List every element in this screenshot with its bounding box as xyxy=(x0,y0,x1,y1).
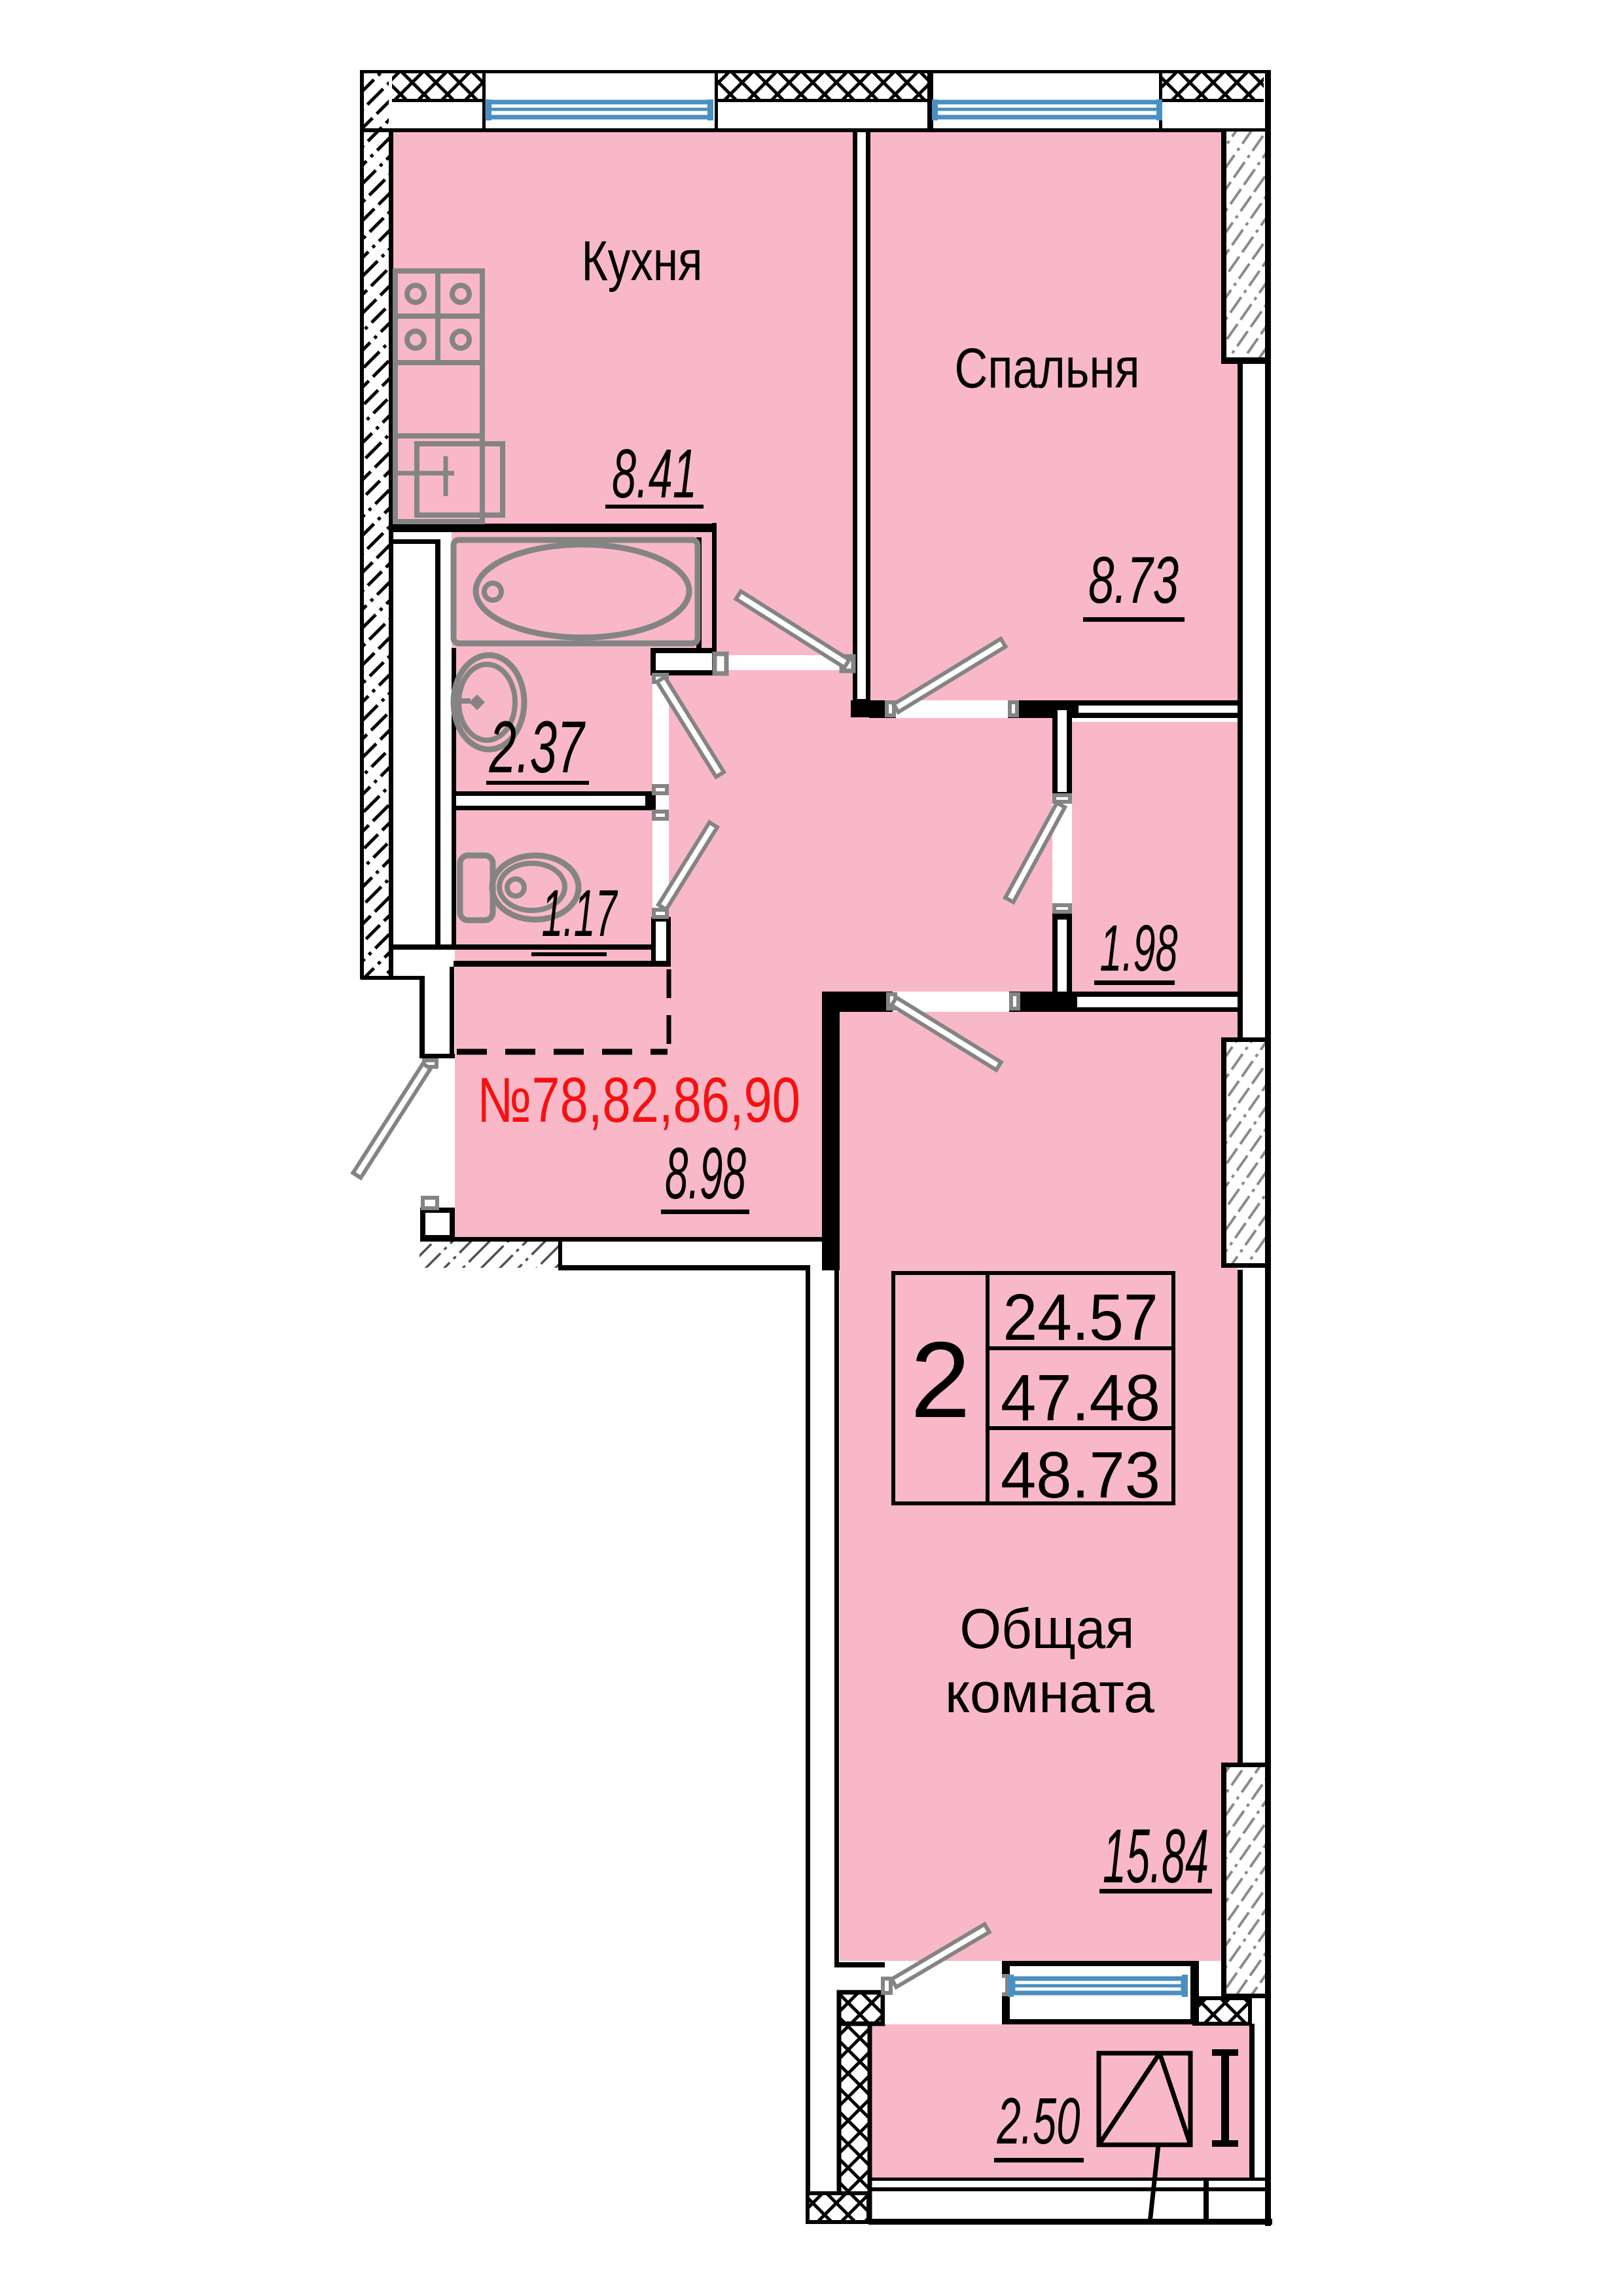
svg-text:8.73: 8.73 xyxy=(1088,544,1179,617)
svg-text:№78,82,86,90: №78,82,86,90 xyxy=(477,1064,800,1136)
svg-text:Спальня: Спальня xyxy=(955,337,1140,400)
svg-text:1.98: 1.98 xyxy=(1100,912,1178,985)
svg-text:Общая: Общая xyxy=(960,1598,1135,1660)
svg-text:47.48: 47.48 xyxy=(1001,1361,1160,1435)
svg-text:48.73: 48.73 xyxy=(1001,1439,1160,1512)
svg-text:2: 2 xyxy=(910,1319,971,1440)
svg-text:15.84: 15.84 xyxy=(1103,1813,1209,1899)
svg-text:24.57: 24.57 xyxy=(1003,1281,1158,1354)
svg-text:Кухня: Кухня xyxy=(582,230,703,293)
svg-text:1.17: 1.17 xyxy=(542,877,618,950)
svg-text:8.98: 8.98 xyxy=(665,1133,746,1214)
svg-text:комната: комната xyxy=(945,1662,1154,1725)
svg-text:2.37: 2.37 xyxy=(489,706,586,788)
svg-text:2.50: 2.50 xyxy=(997,2085,1080,2158)
svg-text:8.41: 8.41 xyxy=(612,435,697,512)
